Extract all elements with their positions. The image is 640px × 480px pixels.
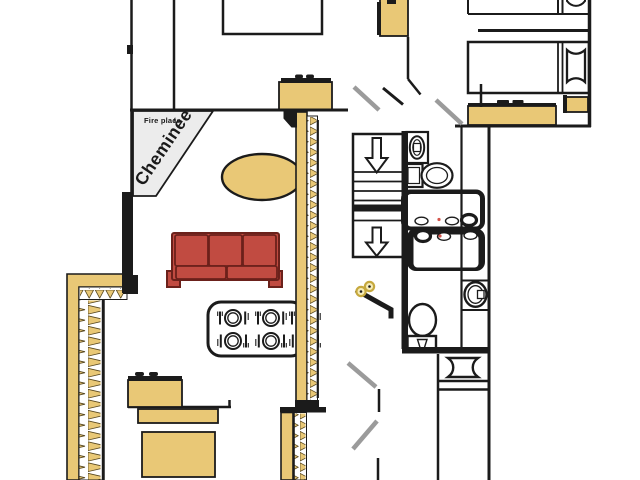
oval-table bbox=[222, 154, 302, 200]
bed-bottom-right bbox=[438, 354, 489, 480]
sofa bbox=[167, 233, 282, 287]
floor-plan: Fire place Cheminée bbox=[0, 0, 640, 480]
balcony-railing-center bbox=[284, 111, 320, 407]
door-swing-hall-lower bbox=[353, 421, 377, 449]
bunk-beds bbox=[401, 190, 485, 272]
kitchen-stove bbox=[128, 372, 231, 407]
wc-door bbox=[356, 282, 391, 319]
kitchen-shelf bbox=[138, 409, 218, 423]
pillow bbox=[567, 0, 585, 6]
bathroom-sink bbox=[461, 281, 489, 311]
vanity-sink bbox=[407, 132, 429, 163]
door-swing-hall-upper bbox=[348, 363, 376, 387]
toilet-upper bbox=[405, 163, 453, 188]
wc-toilet bbox=[408, 304, 437, 352]
floor-plan-drawing bbox=[0, 0, 640, 480]
door-swing-kitchen bbox=[354, 87, 379, 110]
kitchen-cabinet bbox=[377, 0, 408, 36]
stairs bbox=[353, 134, 403, 257]
bed-top-2 bbox=[468, 42, 589, 93]
balcony-railing-bottom bbox=[280, 407, 326, 480]
nightstand bbox=[563, 95, 588, 113]
stairs-landing bbox=[353, 205, 403, 212]
storage-room-outline bbox=[223, 0, 322, 34]
pillow bbox=[567, 50, 585, 82]
door-swing-bathroom-top bbox=[436, 100, 462, 124]
pillow bbox=[448, 358, 478, 377]
kitchen-table bbox=[142, 432, 215, 477]
kitchen-counter bbox=[279, 75, 332, 111]
bed-top-1 bbox=[468, 0, 589, 14]
